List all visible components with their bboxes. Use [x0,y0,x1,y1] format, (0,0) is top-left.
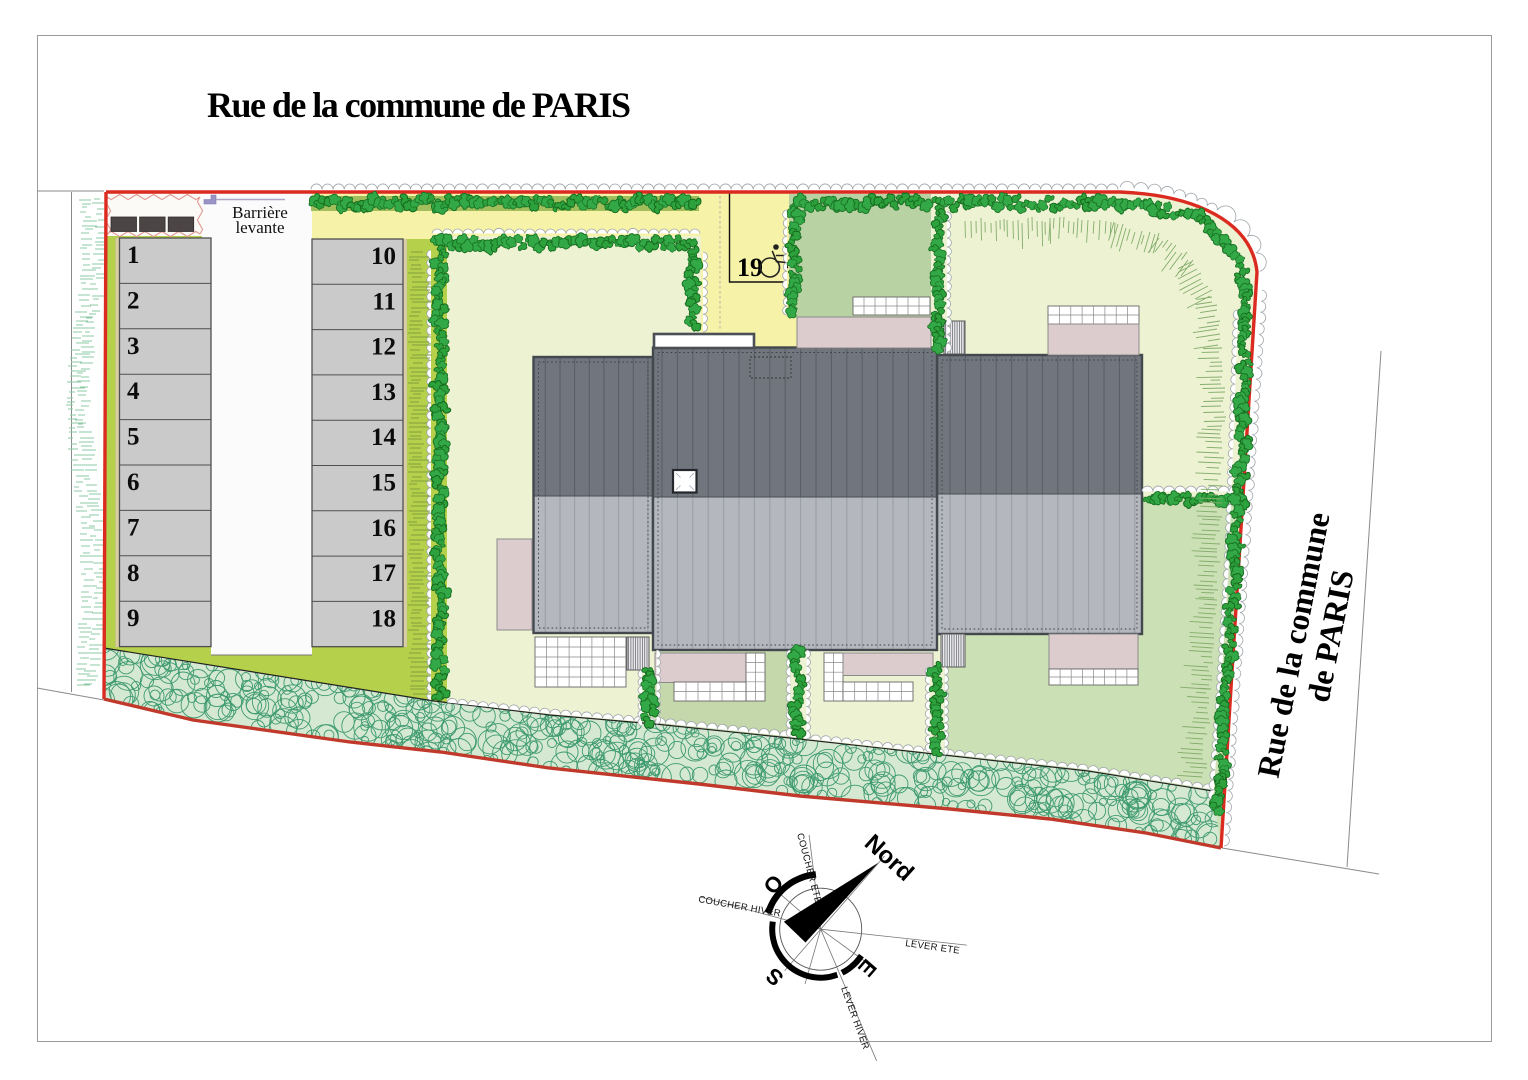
svg-text:9: 9 [127,605,140,632]
svg-text:1: 1 [127,242,140,269]
svg-text:3: 3 [127,333,140,360]
svg-text:2: 2 [127,287,140,314]
svg-text:8: 8 [127,560,140,587]
svg-text:13: 13 [371,379,396,406]
svg-text:4: 4 [127,378,140,405]
svg-text:18: 18 [371,605,396,632]
svg-text:15: 15 [371,470,396,497]
svg-text:5: 5 [127,424,140,451]
svg-text:14: 14 [371,424,397,451]
svg-text:17: 17 [371,560,396,587]
svg-text:11: 11 [372,288,396,315]
svg-text:7: 7 [127,514,140,541]
svg-text:6: 6 [127,469,140,496]
svg-text:12: 12 [371,334,396,361]
svg-text:19: 19 [737,253,763,282]
svg-text:10: 10 [371,243,396,270]
svg-text:levante: levante [235,218,284,237]
svg-text:Rue de la commune de PARIS: Rue de la commune de PARIS [207,85,631,125]
svg-text:16: 16 [371,515,396,542]
